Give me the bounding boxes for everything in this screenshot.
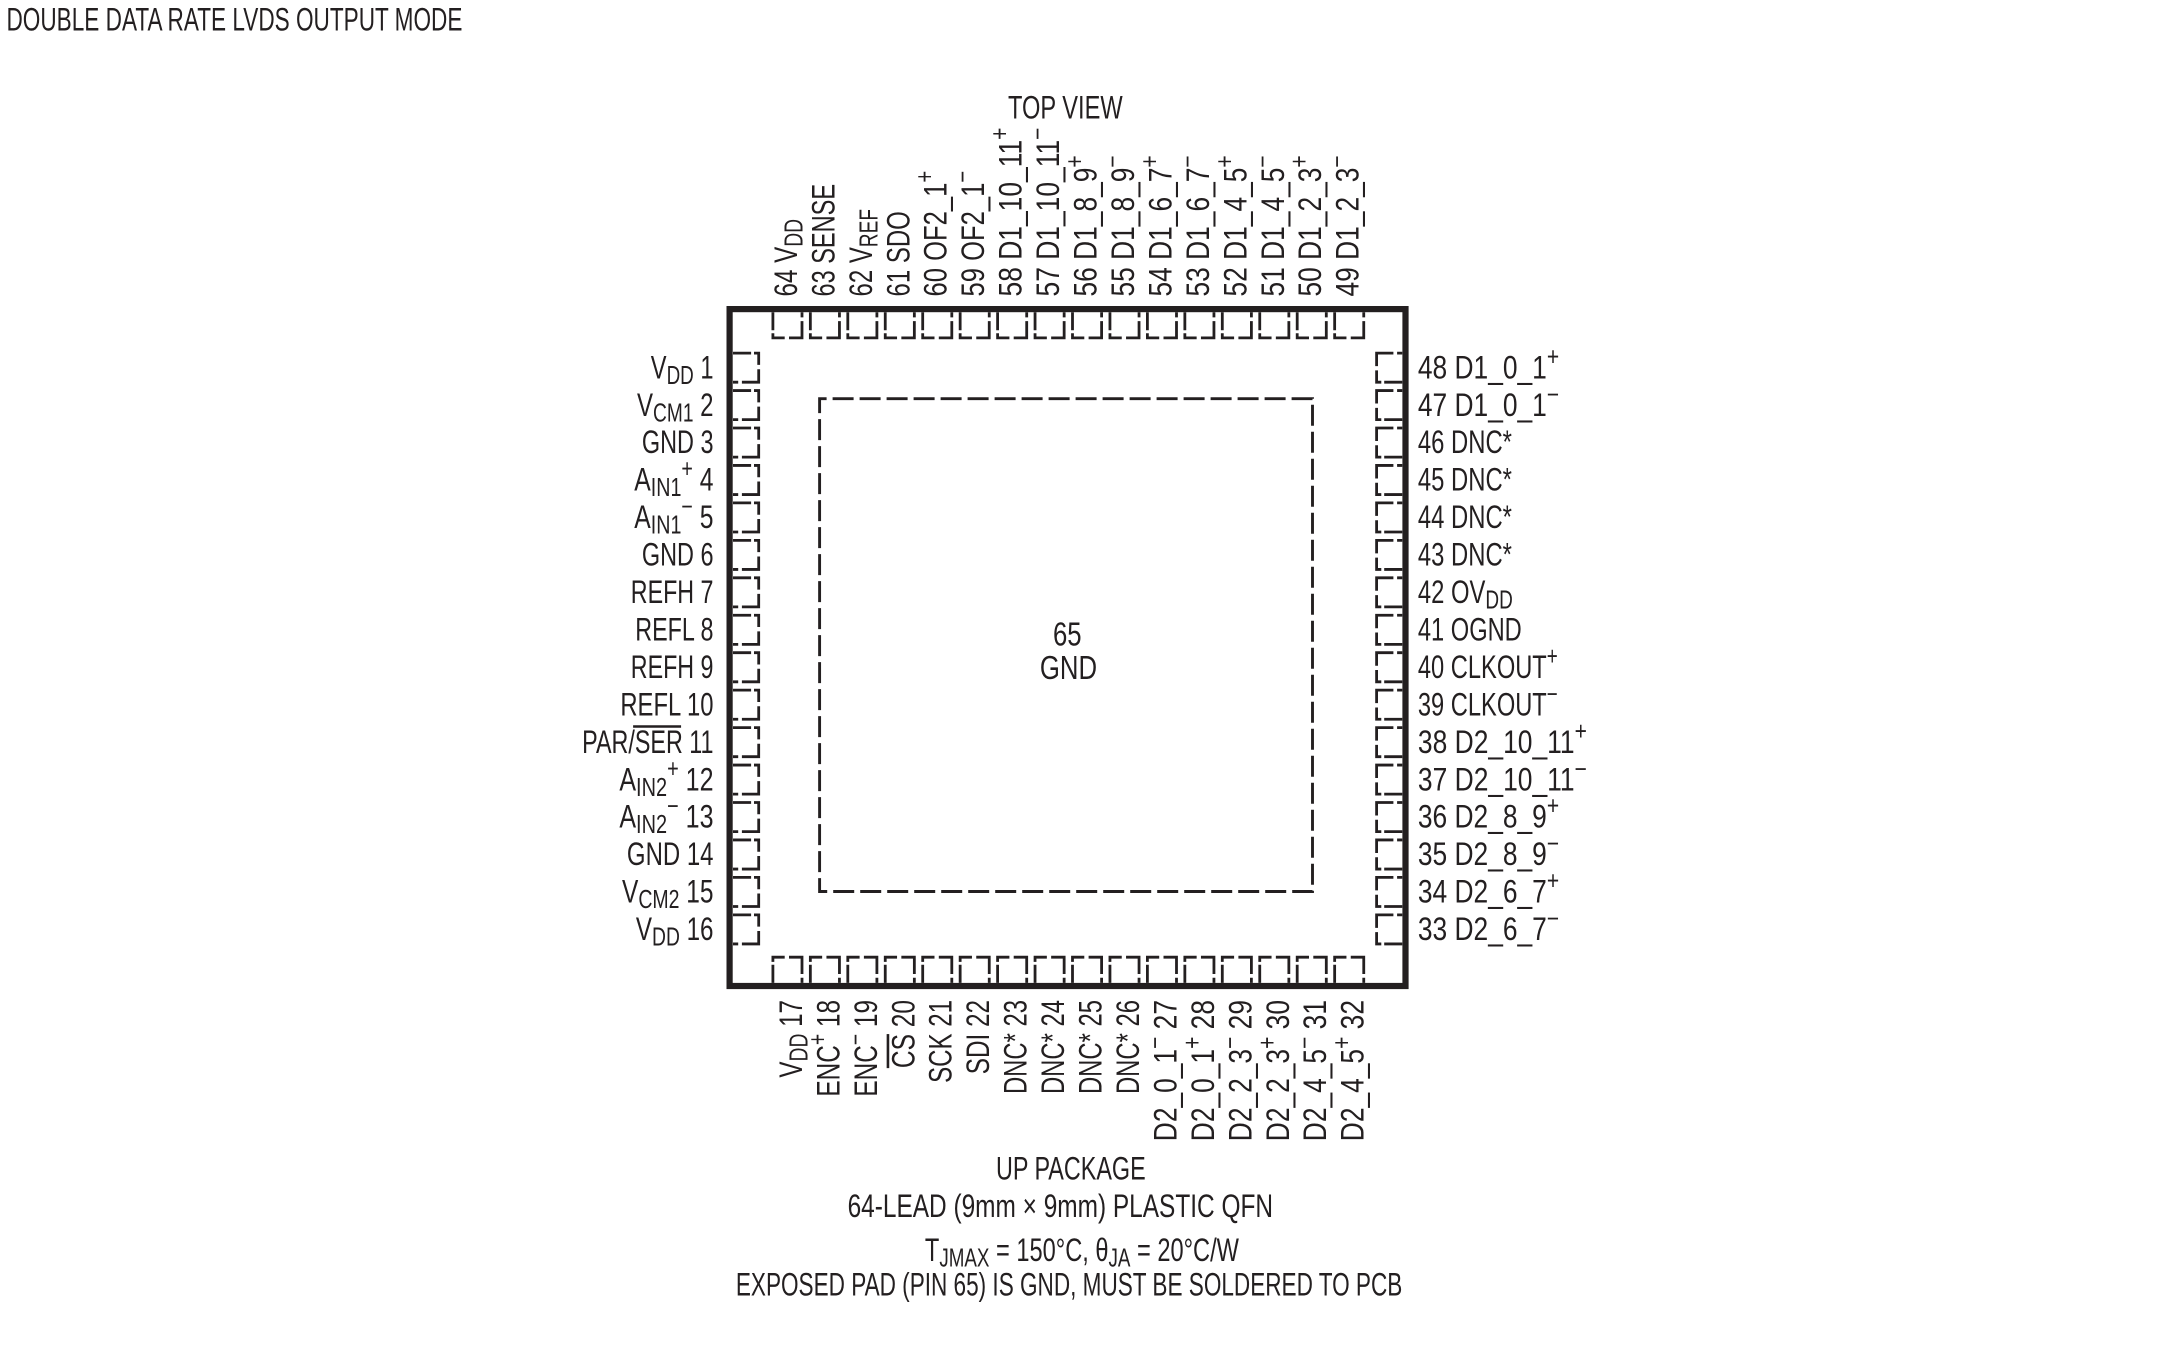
svg-text:58 D1_10_11+: 58 D1_10_11+: [986, 128, 1030, 297]
svg-text:GND 14: GND 14: [627, 836, 714, 872]
svg-text:34 D2_6_7+: 34 D2_6_7+: [1418, 867, 1559, 911]
svg-text:42 OVDD: 42 OVDD: [1418, 573, 1513, 614]
svg-text:TOP VIEW: TOP VIEW: [1008, 90, 1123, 127]
svg-text:60 OF2_1+: 60 OF2_1+: [911, 171, 955, 297]
svg-text:54 D1_6_7+: 54 D1_6_7+: [1135, 155, 1179, 296]
svg-text:REFH 9: REFH 9: [631, 649, 714, 684]
svg-text:VDD 16: VDD 16: [636, 912, 714, 951]
svg-text:D2_2_3− 29: D2_2_3− 29: [1215, 1000, 1259, 1141]
svg-text:PAR/SER 11: PAR/SER 11: [582, 724, 713, 759]
svg-text:50 D1_2_3+: 50 D1_2_3+: [1285, 155, 1329, 296]
svg-text:GND: GND: [1040, 650, 1097, 687]
svg-text:59 OF2_1−: 59 OF2_1−: [948, 171, 992, 297]
svg-text:51 D1_4_5−: 51 D1_4_5−: [1248, 155, 1292, 296]
svg-text:53 D1_6_7−: 53 D1_6_7−: [1173, 155, 1217, 296]
svg-text:GND 6: GND 6: [642, 537, 714, 572]
svg-text:UP PACKAGE: UP PACKAGE: [996, 1150, 1146, 1187]
svg-text:DNC* 25: DNC* 25: [1072, 1000, 1108, 1094]
svg-text:39 CLKOUT−: 39 CLKOUT−: [1418, 680, 1558, 723]
svg-text:VDD 1: VDD 1: [651, 350, 714, 390]
svg-text:CS 20: CS 20: [886, 1000, 922, 1068]
svg-text:D2_0_1− 27: D2_0_1− 27: [1140, 1000, 1184, 1141]
svg-text:45 DNC*: 45 DNC*: [1418, 461, 1512, 497]
svg-text:63 SENSE: 63 SENSE: [806, 184, 841, 297]
svg-text:VCM2 15: VCM2 15: [622, 875, 713, 914]
svg-text:64-LEAD (9mm × 9mm) PLASTIC QF: 64-LEAD (9mm × 9mm) PLASTIC QFN: [848, 1188, 1273, 1224]
svg-text:64 VDD: 64 VDD: [769, 219, 808, 297]
svg-text:37 D2_10_11−: 37 D2_10_11−: [1418, 754, 1587, 798]
svg-text:46 DNC*: 46 DNC*: [1418, 424, 1512, 460]
svg-text:35 D2_8_9−: 35 D2_8_9−: [1418, 829, 1559, 873]
svg-text:47 D1_0_1−: 47 D1_0_1−: [1418, 380, 1559, 424]
svg-text:D2_4_5+ 32: D2_4_5+ 32: [1328, 1000, 1372, 1141]
svg-text:65: 65: [1053, 616, 1082, 653]
svg-text:SCK 21: SCK 21: [922, 1000, 958, 1083]
svg-text:49 D1_2_3−: 49 D1_2_3−: [1323, 155, 1367, 296]
svg-text:56 D1_8_9+: 56 D1_8_9+: [1061, 155, 1105, 296]
svg-text:57 D1_10_11−: 57 D1_10_11−: [1023, 128, 1067, 297]
svg-text:62 VREF: 62 VREF: [842, 209, 883, 296]
svg-text:36 D2_8_9+: 36 D2_8_9+: [1418, 792, 1559, 836]
svg-text:33 D2_6_7−: 33 D2_6_7−: [1418, 904, 1559, 948]
svg-text:GND 3: GND 3: [642, 425, 714, 460]
svg-text:48 D1_0_1+: 48 D1_0_1+: [1418, 342, 1559, 386]
svg-text:EXPOSED PAD (PIN 65) IS GND, M: EXPOSED PAD (PIN 65) IS GND, MUST BE SOL…: [736, 1266, 1402, 1302]
svg-text:VCM1 2: VCM1 2: [637, 386, 713, 427]
svg-text:SDI 22: SDI 22: [961, 1000, 997, 1074]
svg-text:52 D1_4_5+: 52 D1_4_5+: [1210, 155, 1254, 296]
svg-text:41 OGND: 41 OGND: [1418, 612, 1522, 647]
svg-text:AIN2− 13: AIN2− 13: [619, 791, 713, 838]
svg-text:D2_4_5− 31: D2_4_5− 31: [1290, 1000, 1334, 1141]
svg-text:DNC* 23: DNC* 23: [997, 1000, 1033, 1094]
svg-text:DNC* 24: DNC* 24: [1035, 1000, 1071, 1094]
svg-text:43 DNC*: 43 DNC*: [1418, 536, 1512, 572]
svg-text:AIN1+ 4: AIN1+ 4: [634, 454, 713, 502]
svg-text:REFH 7: REFH 7: [631, 574, 714, 609]
svg-text:D2_0_1+ 28: D2_0_1+ 28: [1178, 1000, 1222, 1141]
svg-text:REFL 8: REFL 8: [635, 612, 713, 647]
svg-text:44 DNC*: 44 DNC*: [1418, 499, 1512, 535]
svg-text:61 SDO: 61 SDO: [880, 211, 916, 296]
svg-text:DOUBLE DATA RATE LVDS OUTPUT M: DOUBLE DATA RATE LVDS OUTPUT MODE: [7, 2, 463, 38]
svg-text:REFL 10: REFL 10: [620, 686, 713, 722]
svg-text:38 D2_10_11+: 38 D2_10_11+: [1418, 717, 1587, 761]
svg-text:55 D1_8_9−: 55 D1_8_9−: [1098, 155, 1142, 296]
svg-text:40 CLKOUT+: 40 CLKOUT+: [1418, 642, 1558, 685]
svg-text:D2_2_3+ 30: D2_2_3+ 30: [1253, 1000, 1297, 1141]
